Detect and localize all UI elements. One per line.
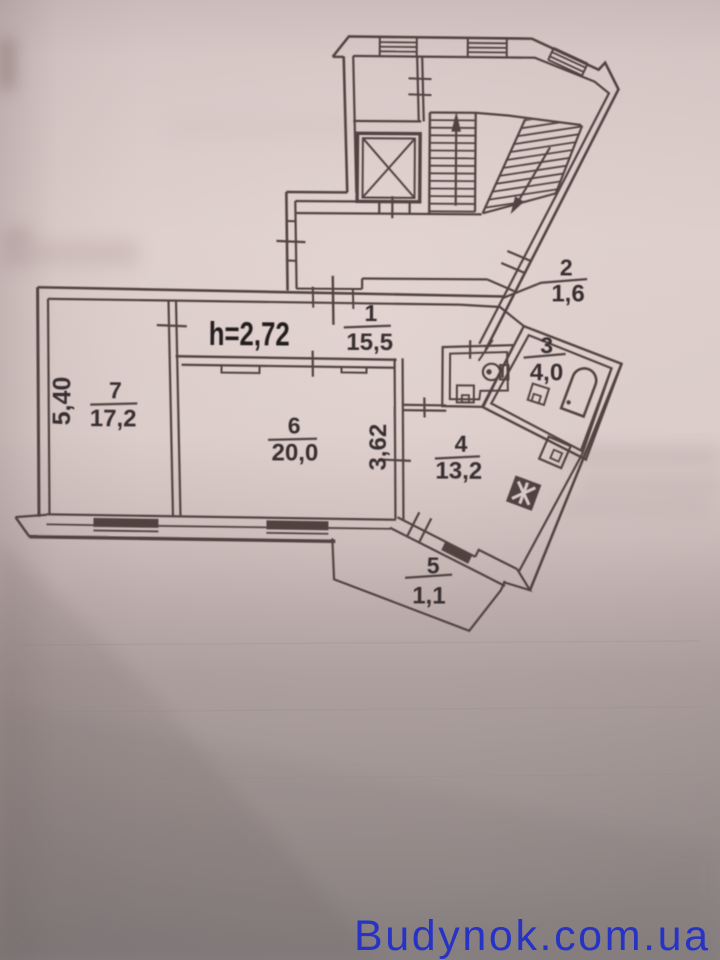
svg-text:13,2: 13,2 [435,458,482,485]
svg-text:7: 7 [109,377,122,403]
svg-text:1,6: 1,6 [551,280,585,307]
svg-text:5,40: 5,40 [48,376,76,425]
svg-text:3,62: 3,62 [365,424,392,471]
svg-text:1: 1 [364,300,377,326]
svg-text:Budynok.com.ua: Budynok.com.ua [354,912,711,960]
svg-text:1,1: 1,1 [412,582,446,609]
svg-text:17,2: 17,2 [90,405,137,432]
svg-text:h=2,72: h=2,72 [209,315,290,353]
svg-text:6: 6 [288,412,301,438]
svg-text:2: 2 [560,254,573,280]
svg-text:20,0: 20,0 [271,439,318,466]
svg-text:15,5: 15,5 [346,329,393,356]
svg-text:4: 4 [455,431,468,457]
svg-text:4,0: 4,0 [530,359,564,386]
